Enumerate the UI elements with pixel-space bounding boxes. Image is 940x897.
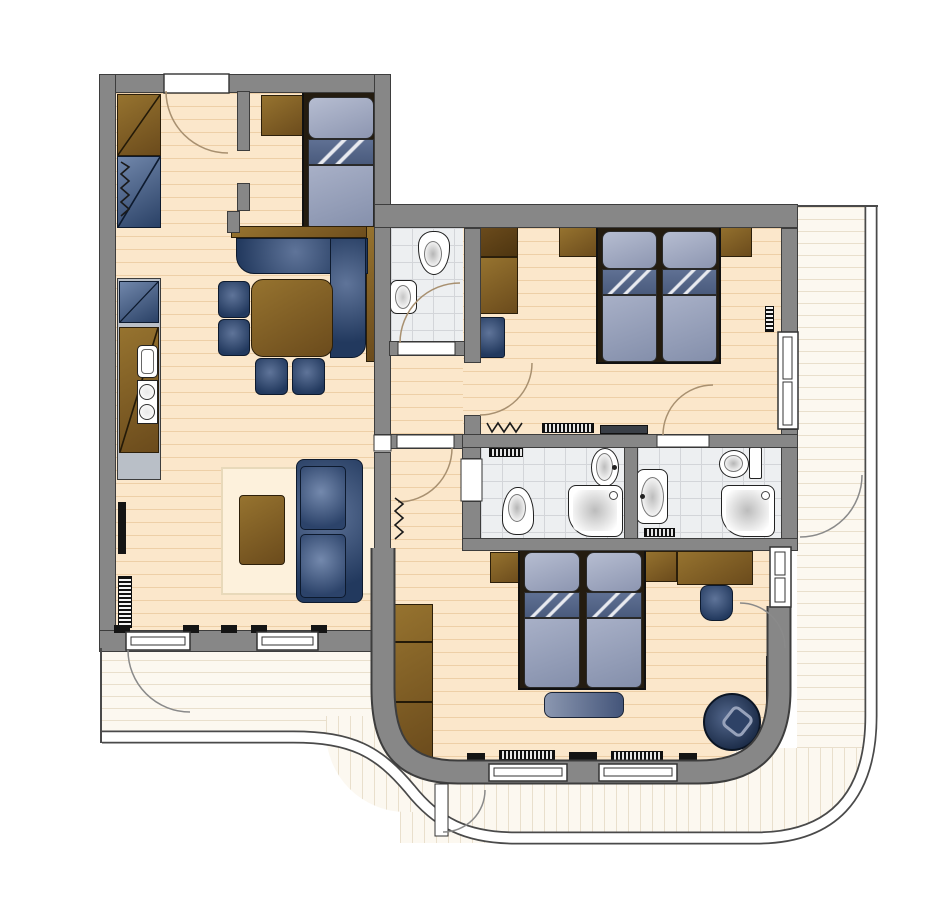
toilet-bathroom-right-tank: [749, 447, 762, 479]
swivel-armchair-cushion: [720, 704, 755, 739]
mat-window-left: [499, 750, 555, 760]
desk-stool: [700, 585, 733, 621]
bed-top-pillow-right: [662, 231, 717, 269]
bed-bottom-fold-right: [586, 592, 642, 618]
single-bed-sheet: [308, 165, 374, 231]
doormat-top-bedroom: [542, 423, 594, 433]
terrace-right-deck: [797, 207, 870, 757]
bed-bottom-pillow-right: [586, 552, 642, 592]
wall-smallroom-a: [237, 91, 250, 151]
shower-drain: [609, 491, 618, 500]
floor-hall-lower: [391, 448, 464, 549]
curtain-mark-5: [311, 625, 327, 633]
wardrobe-bottom-bedroom: [392, 604, 433, 760]
wall-bath-west-a: [462, 447, 481, 459]
sill-mark-1: [467, 753, 485, 762]
dining-table: [251, 279, 333, 357]
wall-bath-divider: [624, 447, 638, 539]
opening-entrance: [164, 74, 229, 93]
bed-top-sheet-left: [602, 295, 657, 362]
wardrobe-top-bedroom-b: [480, 257, 518, 314]
shelf-strip: [600, 425, 648, 434]
bed-top-pillow-left: [602, 231, 657, 269]
bed-bottom-pillow-left: [524, 552, 580, 592]
sofa: [296, 459, 363, 603]
bed-bottom-fold-left: [524, 592, 580, 618]
headboard-cabinet-right: [643, 551, 677, 582]
single-bed-pillow: [308, 97, 374, 139]
bedside-shelf: [261, 95, 306, 136]
shower-drain: [761, 491, 770, 500]
wall-hall-mid: [389, 434, 465, 449]
window-bedroom-top-frame-b: [783, 382, 792, 425]
radiator-top-bedroom: [765, 306, 774, 332]
bed-bottom-sheet-left: [524, 618, 580, 688]
wall-living-east-a: [374, 74, 391, 435]
wall-bath-west-b: [462, 501, 481, 539]
kitchen-sink: [137, 345, 158, 378]
burner-2: [139, 404, 155, 420]
mat-bathroom-right: [644, 528, 675, 537]
mat-bathroom-left: [489, 448, 523, 457]
wardrobe-top-band-a: [559, 226, 600, 257]
dining-chair-1: [218, 281, 250, 318]
coat-rack-panel: [117, 156, 161, 228]
desk: [677, 551, 753, 585]
sill-mark-3: [679, 753, 697, 762]
corner-bench-seat-right: [330, 238, 366, 358]
sofa-cushion-1: [300, 466, 346, 530]
wall-west: [99, 74, 116, 652]
toilet-bathroom-right-bowl: [719, 450, 749, 478]
double-bed-top: [596, 225, 721, 364]
bed-top-fold-left: [602, 269, 657, 295]
bed-bottom-sheet-right: [586, 618, 642, 688]
floor-hall-upper: [391, 355, 464, 436]
refrigerator: [119, 281, 159, 323]
wall-bedroomtop-west-a: [464, 228, 481, 363]
sofa-cushion-2: [300, 534, 346, 598]
wall-bath-south: [462, 538, 798, 551]
foot-bench: [544, 692, 624, 718]
swivel-armchair: [703, 693, 761, 751]
single-bed: [302, 91, 380, 235]
radiator-bottom-bedroom: [766, 656, 775, 706]
burner-1: [139, 384, 155, 400]
curtain-mark-3: [221, 625, 237, 633]
shower-bathroom-right: [721, 485, 775, 537]
wall-south-living: [99, 630, 391, 652]
wall-top-left-b: [228, 74, 391, 93]
curtain-mark-4: [251, 625, 267, 633]
shower-bathroom-left: [568, 485, 623, 537]
wall-living-east-b: [374, 452, 391, 550]
wardrobe-top-bedroom-a: [480, 226, 518, 257]
cooktop: [137, 380, 158, 424]
wall-bench-stub: [227, 211, 240, 233]
curtain-mark-2: [183, 625, 199, 633]
bench-back-top: [231, 226, 378, 238]
basin-bathroom-left: [591, 448, 619, 487]
opening-bathroom-left-door: [461, 459, 482, 501]
bed-top-fold-right: [662, 269, 717, 295]
wall-bath-north: [462, 434, 798, 448]
dining-chair-2: [218, 319, 250, 356]
basin-bathroom-right: [636, 469, 668, 524]
single-bed-fold: [308, 139, 374, 165]
wall-north-main: [374, 204, 798, 228]
wc-basin: [390, 280, 417, 314]
double-bed-bottom: [518, 546, 646, 690]
wall-east-main-a: [781, 228, 798, 334]
toilet-bathroom-left: [502, 487, 534, 535]
dining-chair-4: [292, 358, 325, 395]
radiator-living: [118, 576, 132, 628]
bed-top-sheet-right: [662, 295, 717, 362]
wall-smallroom-b: [237, 183, 250, 211]
curtain-mark-1: [114, 625, 130, 633]
floorplan-canvas: [0, 0, 940, 897]
dining-chair-3: [255, 358, 288, 395]
entry-wardrobe: [117, 94, 161, 156]
window-bedroom-top: [778, 332, 798, 429]
mat-window-right: [611, 751, 663, 761]
coffee-table: [239, 495, 285, 565]
window-bedroom-top-frame-a: [783, 337, 792, 379]
wall-wc-south: [389, 341, 465, 356]
sill-mark-2: [569, 752, 597, 762]
tv: [118, 502, 126, 554]
